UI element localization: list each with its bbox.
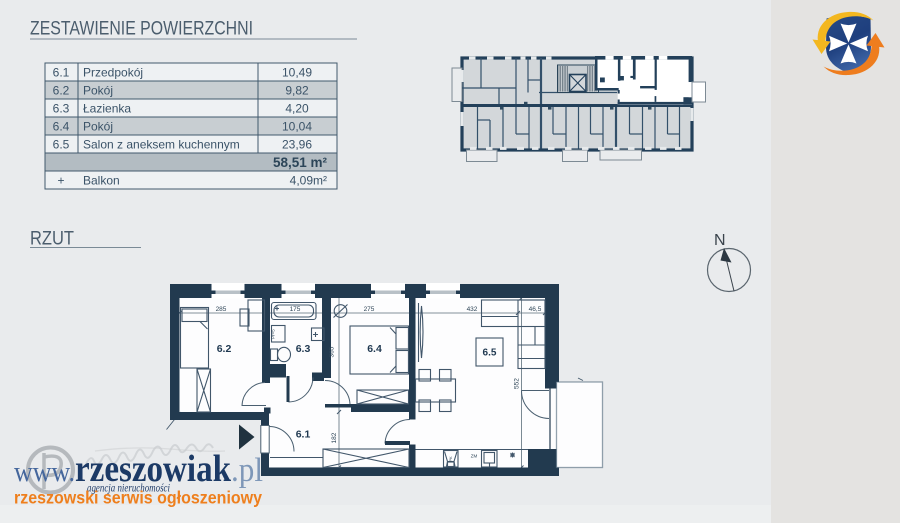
svg-text:ZM: ZM (471, 454, 478, 459)
svg-text:Pokój: Pokój (83, 120, 113, 134)
svg-text:275: 275 (364, 306, 375, 313)
svg-text:rzeszowski serwis ogłoszeniowy: rzeszowski serwis ogłoszeniowy (14, 488, 262, 508)
svg-text:Salon z aneksem kuchennym: Salon z aneksem kuchennym (83, 138, 240, 152)
svg-text:PK: PK (448, 456, 453, 462)
svg-text:6.1: 6.1 (296, 429, 311, 441)
svg-text:432: 432 (467, 306, 478, 313)
svg-text:10,49: 10,49 (282, 66, 312, 80)
svg-text:6.3: 6.3 (296, 343, 311, 355)
svg-text:365: 365 (329, 346, 336, 357)
svg-text:RZUT: RZUT (30, 228, 74, 250)
svg-text:6.1: 6.1 (53, 66, 70, 80)
svg-text:285: 285 (216, 306, 227, 313)
svg-text:www.: www. (14, 456, 75, 488)
svg-text:ZESTAWIENIE POWIERZCHNI: ZESTAWIENIE POWIERZCHNI (30, 18, 253, 40)
svg-text:+: + (57, 174, 64, 188)
svg-text:6.4: 6.4 (367, 343, 382, 355)
svg-text:Przedpokój: Przedpokój (83, 66, 143, 80)
svg-text:Balkon: Balkon (83, 174, 120, 188)
svg-text:Pokój: Pokój (83, 84, 113, 98)
svg-text:46,5: 46,5 (529, 306, 542, 313)
svg-text:N: N (714, 232, 726, 249)
svg-text:6.5: 6.5 (483, 348, 497, 359)
svg-text:4,09m²: 4,09m² (290, 174, 327, 188)
svg-text:6.2: 6.2 (217, 343, 232, 355)
svg-text:175: 175 (290, 306, 301, 313)
svg-text:6.5: 6.5 (53, 138, 70, 152)
svg-text:552: 552 (514, 378, 521, 389)
svg-text:.pl: .pl (231, 452, 263, 489)
svg-text:23,96: 23,96 (282, 138, 312, 152)
svg-text:4,20: 4,20 (285, 102, 309, 116)
svg-text:Łazienka: Łazienka (83, 102, 131, 116)
svg-text:6.3: 6.3 (53, 102, 70, 116)
svg-text:58,51 m²: 58,51 m² (273, 155, 328, 170)
svg-text:Pr=5: Pr=5 (271, 329, 276, 339)
svg-text:182: 182 (331, 432, 338, 443)
svg-text:9,82: 9,82 (285, 84, 309, 98)
svg-text:6.4: 6.4 (53, 120, 70, 134)
svg-text:6.2: 6.2 (53, 84, 70, 98)
svg-text:10,04: 10,04 (282, 120, 312, 134)
